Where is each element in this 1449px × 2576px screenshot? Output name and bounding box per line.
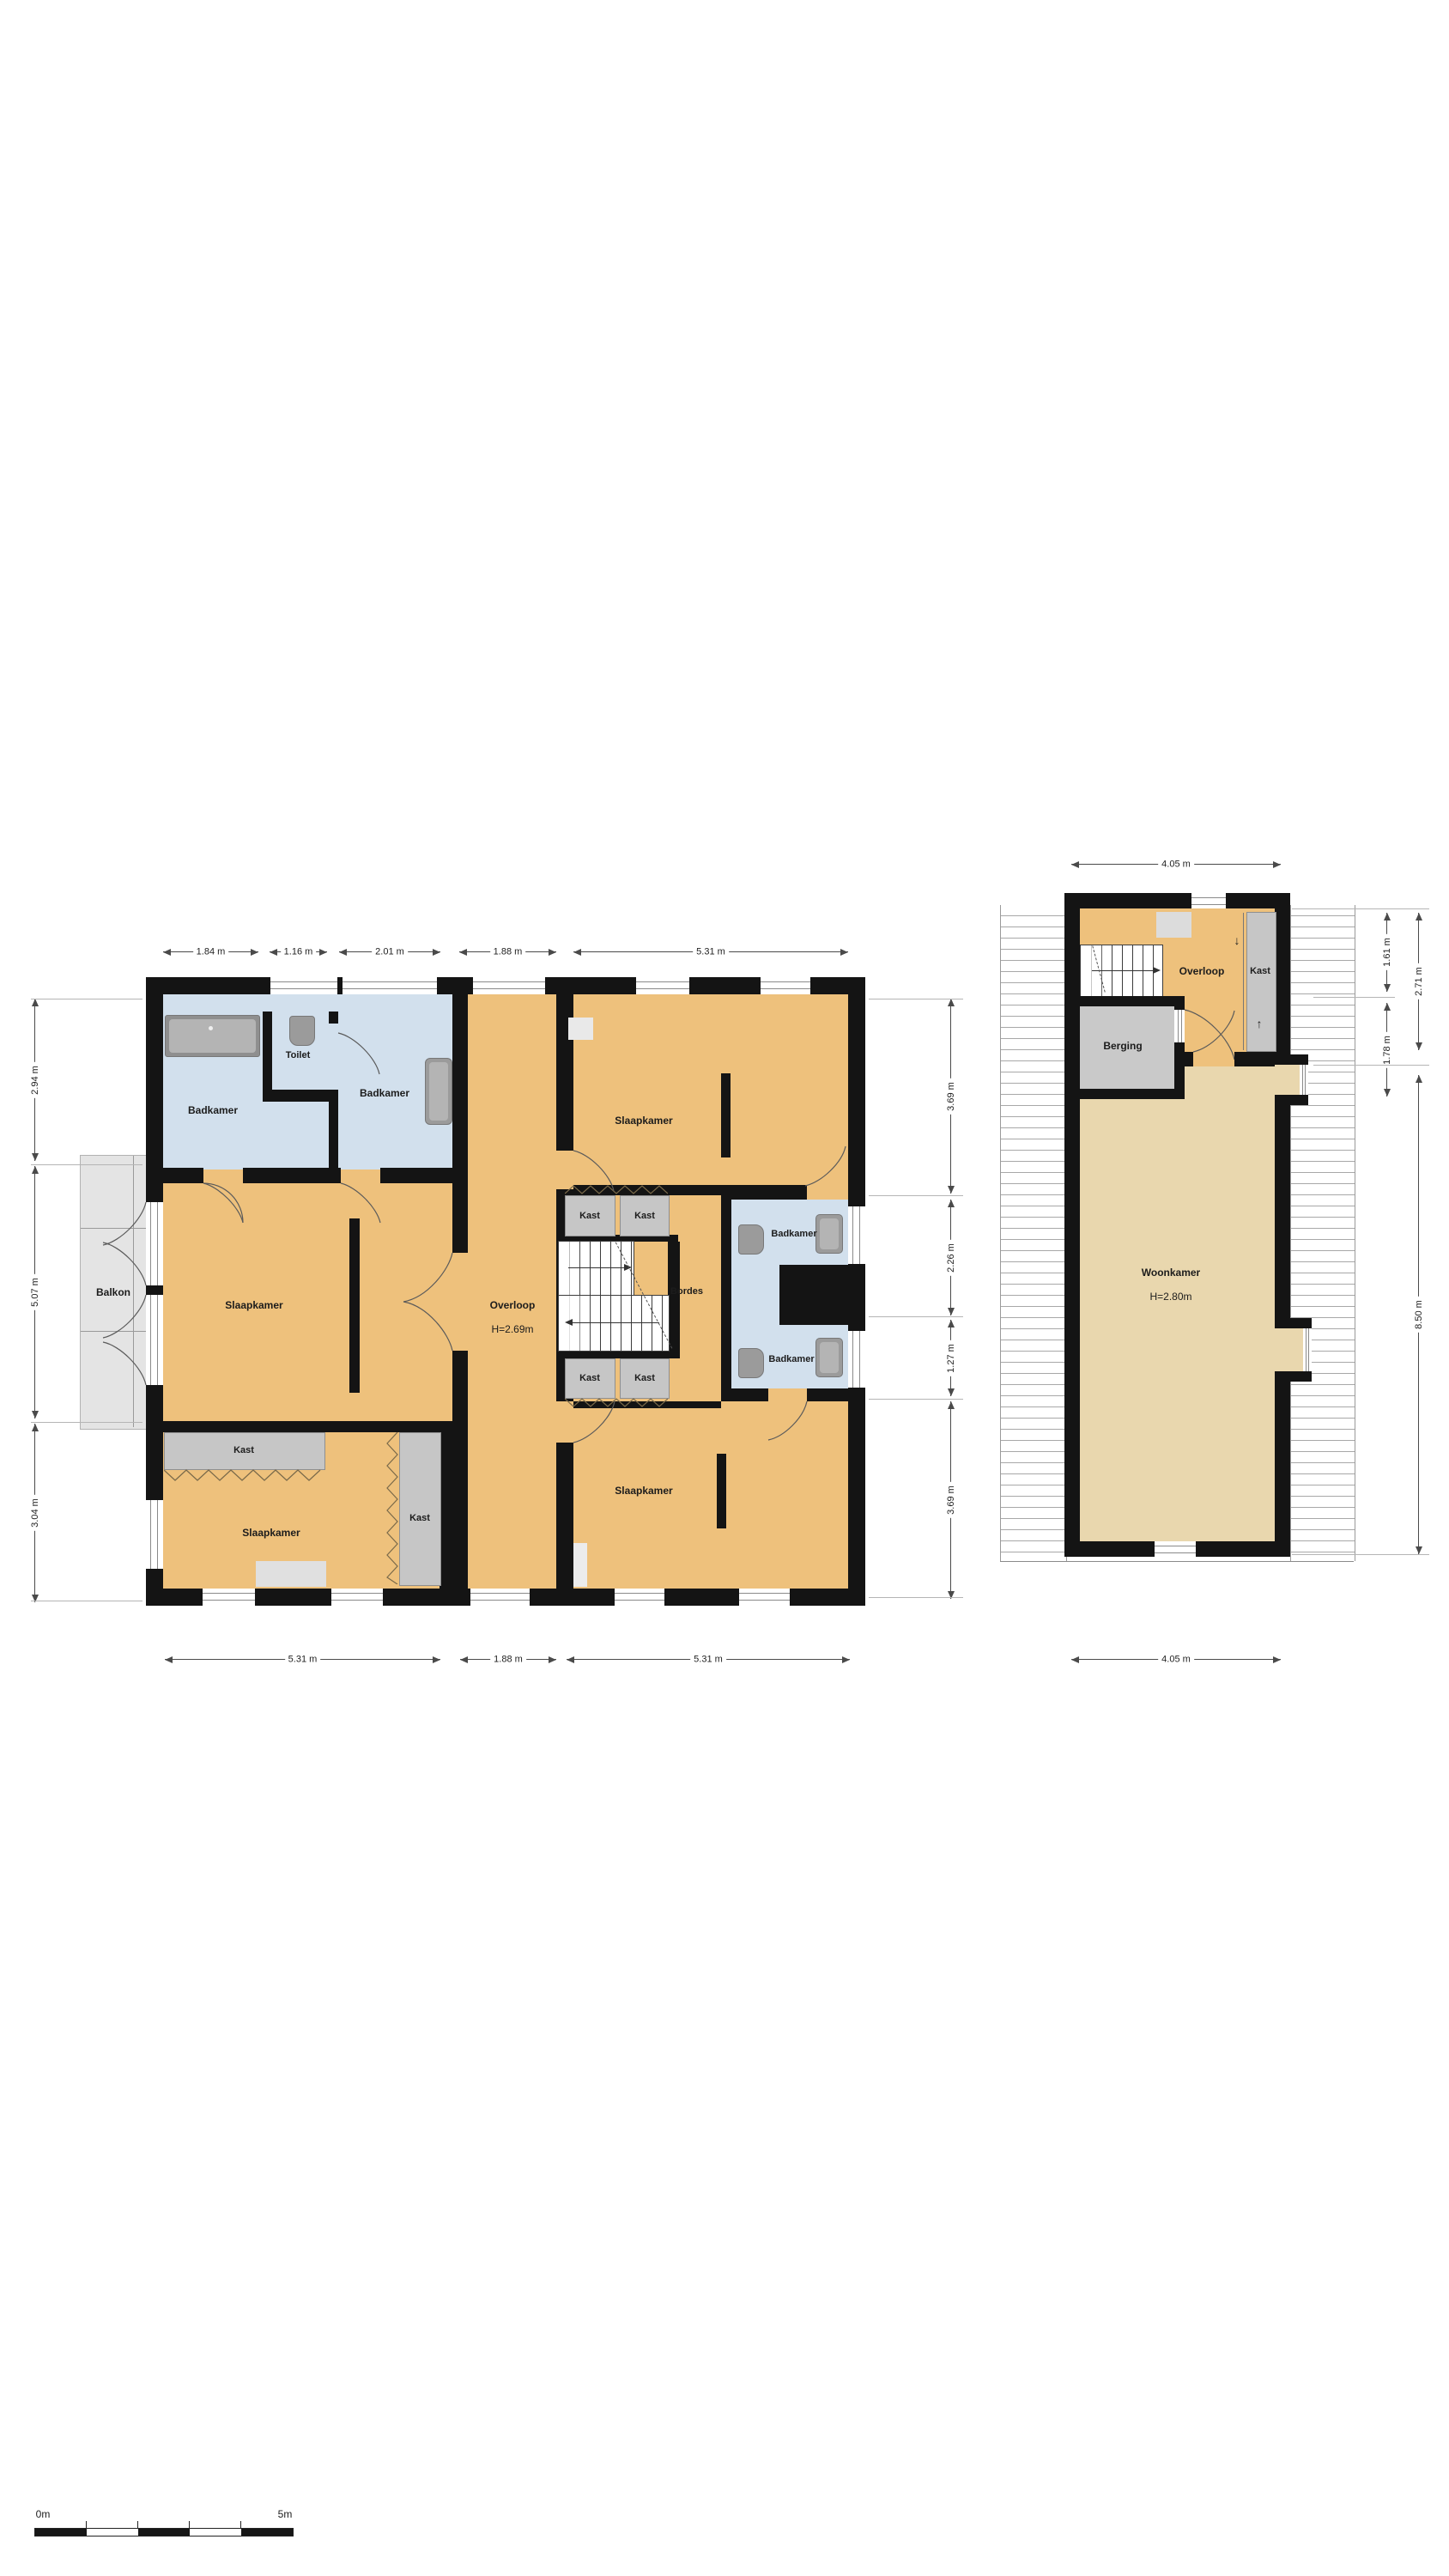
dim-right-1: 3.69 m — [950, 999, 951, 1194]
extension-line — [1292, 908, 1429, 909]
stair-arrowhead — [1153, 967, 1161, 974]
extension-line — [1292, 1554, 1429, 1555]
dim-left-1: 2.94 m — [34, 999, 35, 1161]
wall-stub — [349, 1218, 360, 1393]
dim-label: 1.88 m — [490, 1654, 526, 1664]
extension-line — [869, 1316, 963, 1317]
room-label-kast-right: Kast — [1250, 966, 1270, 976]
dim-label: 5.31 m — [693, 946, 729, 957]
dim-right-2: 2.26 m — [950, 1200, 951, 1315]
wall — [440, 1432, 452, 1589]
rug — [573, 1543, 587, 1587]
wall — [556, 1443, 573, 1589]
dim-bottom-1: 5.31 m — [165, 1659, 440, 1660]
dim-label: 1.27 m — [946, 1340, 956, 1376]
sink — [425, 1058, 452, 1125]
room-label-kast-tall: Kast — [409, 1513, 430, 1523]
door-arc — [103, 1342, 146, 1385]
stairs-lower-flight — [558, 1295, 670, 1352]
roof-hatch-left — [1000, 905, 1067, 1561]
sink — [815, 1338, 843, 1377]
door-arc — [203, 1183, 243, 1223]
extension-line — [1313, 997, 1395, 998]
dim-top-4: 1.88 m — [459, 951, 556, 952]
door-arc — [573, 1151, 614, 1191]
dim-top-3: 2.01 m — [339, 951, 440, 952]
extension-line — [31, 1164, 142, 1165]
wall — [1275, 1318, 1312, 1328]
extension-line — [31, 1601, 142, 1601]
window — [1155, 1541, 1196, 1557]
dim-label: 2.26 m — [946, 1240, 956, 1276]
wall — [1064, 1089, 1185, 1099]
wall — [848, 977, 865, 1606]
scale-label-end: 5m — [278, 2508, 293, 2520]
door-arc-double — [403, 1302, 452, 1351]
room-label-berging: Berging — [1103, 1040, 1142, 1052]
floorplan-canvas: Badkamer Toilet Badkamer Slaapkamer Balk… — [0, 0, 1449, 2576]
dim-label: 5.31 m — [690, 1654, 726, 1664]
extension-line — [31, 999, 142, 999]
wall — [452, 1351, 468, 1589]
wall — [1275, 1054, 1308, 1065]
room-label-badkamer-nw: Badkamer — [188, 1104, 238, 1116]
window — [739, 1589, 790, 1606]
stair-arrow — [570, 1322, 659, 1323]
room-label-badkamer-e2: Badkamer — [768, 1354, 814, 1364]
wall — [1275, 1095, 1308, 1105]
dim-rp-inner-1: 1.61 m — [1386, 913, 1387, 992]
scale-tick — [137, 2521, 138, 2528]
kast-tall-box — [399, 1432, 441, 1586]
wall — [1275, 893, 1290, 1065]
extension-line — [31, 1422, 142, 1423]
sink-inner — [429, 1062, 448, 1121]
wall — [452, 994, 468, 1253]
wall — [1064, 893, 1290, 908]
wall — [146, 1285, 163, 1295]
room-label-slaapkamer-w: Slaapkamer — [225, 1299, 282, 1311]
corner-panel — [568, 1018, 593, 1040]
dim-label: 8.50 m — [1414, 1297, 1424, 1333]
room-label-bordes: Bordes — [670, 1286, 703, 1297]
dim-right-4: 3.69 m — [950, 1401, 951, 1599]
room-label-overloop2: Overloop — [1179, 965, 1225, 977]
dim-label: 5.07 m — [30, 1274, 40, 1310]
wall — [243, 1168, 341, 1183]
folding-door-icon — [164, 1468, 324, 1484]
stairs-upper-flight — [558, 1241, 634, 1297]
dim-rp-inner-2: 1.78 m — [1386, 1003, 1387, 1097]
dim-label: 1.61 m — [1382, 934, 1392, 970]
dim-label: 1.88 m — [490, 946, 526, 957]
dim-right-3: 1.27 m — [950, 1320, 951, 1396]
room-label-woonkamer: Woonkamer — [1142, 1267, 1200, 1279]
window — [270, 977, 337, 994]
window — [146, 1500, 163, 1569]
berging-door-opening — [1174, 1010, 1185, 1042]
dim-label: 4.05 m — [1158, 1654, 1194, 1664]
door-arc — [338, 1033, 379, 1074]
sink-inner — [820, 1342, 839, 1373]
window — [331, 1589, 383, 1606]
room-label-kast-wide: Kast — [233, 1445, 254, 1455]
door-arc-double — [403, 1253, 452, 1302]
door-arc — [1193, 1011, 1234, 1052]
wall — [329, 1012, 338, 1024]
woonkamer-bump-lower — [1275, 1328, 1303, 1371]
door-arc — [103, 1242, 146, 1285]
scale-tick — [240, 2521, 241, 2528]
scale-label-start: 0m — [36, 2508, 51, 2520]
extension-line — [869, 999, 963, 999]
door-arc — [805, 1146, 846, 1186]
stair-up-arrow-icon: ↑ — [1257, 1017, 1263, 1030]
dim-label: 2.01 m — [372, 946, 408, 957]
kast-slide-line — [1243, 913, 1244, 1050]
ground-line — [1000, 1561, 1354, 1562]
dim-label: 3.04 m — [30, 1495, 40, 1531]
wall — [263, 1012, 272, 1092]
bathtub-drain — [209, 1026, 213, 1030]
wall — [1275, 1371, 1312, 1382]
sink-inner — [820, 1218, 839, 1249]
room-label-slaapkamer-ne: Slaapkamer — [615, 1115, 672, 1127]
dim-rp-top: 4.05 m — [1071, 864, 1281, 865]
stair-arrowhead — [565, 1319, 573, 1326]
stair-down-arrow-icon: ↓ — [1234, 933, 1240, 947]
dim-label: 3.69 m — [946, 1482, 956, 1518]
stairs-right-plan — [1080, 945, 1163, 998]
extension-line — [869, 1597, 963, 1598]
wall — [807, 1388, 848, 1401]
window — [848, 1331, 865, 1388]
wall — [163, 1421, 452, 1432]
bathtub-inner — [169, 1019, 256, 1053]
dim-label: 1.16 m — [281, 946, 317, 957]
dim-top-2: 1.16 m — [270, 951, 327, 952]
window — [1300, 1065, 1308, 1095]
wall — [721, 1185, 807, 1200]
wall — [1275, 1382, 1290, 1541]
wall — [263, 1090, 338, 1102]
scale-tick — [86, 2521, 87, 2528]
room-label-overloop: Overloop — [490, 1299, 536, 1311]
dim-left-2: 5.07 m — [34, 1166, 35, 1419]
door-arc — [103, 1295, 146, 1338]
wall — [380, 1168, 452, 1183]
wall — [721, 1200, 731, 1401]
scale-bar — [34, 2528, 294, 2537]
balkon-line-v — [133, 1156, 134, 1427]
dim-label: 2.94 m — [30, 1062, 40, 1098]
woonkamer-bump-upper — [1275, 1065, 1300, 1095]
sink — [815, 1214, 843, 1254]
dim-left-3: 3.04 m — [34, 1424, 35, 1602]
dim-rp-outer-1: 2.71 m — [1418, 913, 1419, 1050]
wall — [1185, 1052, 1193, 1066]
room-label-overloop-height: H=2.69m — [491, 1323, 533, 1335]
door-arc — [341, 1183, 380, 1223]
window — [1191, 893, 1226, 908]
dim-top-5: 5.31 m — [573, 951, 848, 952]
dim-label: 3.69 m — [946, 1078, 956, 1115]
extension-line — [869, 1399, 963, 1400]
dim-rp-outer-2: 8.50 m — [1418, 1075, 1419, 1554]
dim-label: 4.05 m — [1158, 859, 1194, 869]
folding-door-icon — [384, 1432, 399, 1584]
window — [343, 977, 437, 994]
dim-rp-bottom: 4.05 m — [1071, 1659, 1281, 1660]
window — [636, 977, 689, 994]
badkamer-corridor-floor — [731, 1265, 779, 1325]
dim-bottom-3: 5.31 m — [567, 1659, 850, 1660]
wall — [1275, 1095, 1290, 1318]
window — [848, 1206, 865, 1264]
dim-bottom-2: 1.88 m — [460, 1659, 556, 1660]
window — [761, 977, 810, 994]
wall — [668, 1242, 680, 1358]
rug — [256, 1561, 326, 1587]
stair-arrow — [568, 1267, 625, 1268]
wall — [1174, 996, 1185, 1010]
room-label-kast-s1: Kast — [579, 1373, 600, 1383]
window — [1303, 1328, 1312, 1371]
scale-tick — [189, 2521, 190, 2528]
room-label-toilet: Toilet — [286, 1050, 311, 1060]
wall-stub — [717, 1454, 726, 1528]
door-arc — [573, 1401, 615, 1443]
roof-hatch-right — [1290, 905, 1355, 1561]
toilet — [738, 1224, 764, 1255]
room-label-badkamer-e1: Badkamer — [771, 1229, 816, 1239]
wall — [1234, 1052, 1275, 1066]
kast-right-plan-box — [1246, 912, 1276, 1052]
door-arc — [103, 1202, 146, 1245]
extension-line — [869, 1195, 963, 1196]
room-label-badkamer-n: Badkamer — [360, 1087, 409, 1099]
bathtub — [165, 1015, 260, 1057]
extension-line — [1313, 1065, 1429, 1066]
room-label-kast-n2: Kast — [634, 1211, 655, 1221]
wall-stub — [721, 1073, 731, 1157]
dim-label: 1.84 m — [193, 946, 229, 957]
wall — [779, 1265, 848, 1325]
room-label-kast-s2: Kast — [634, 1373, 655, 1383]
window — [615, 1589, 664, 1606]
wall — [1064, 996, 1185, 1006]
dim-label: 2.71 m — [1414, 963, 1424, 999]
window — [473, 977, 545, 994]
stair-arrow — [1092, 970, 1154, 971]
door-arc — [768, 1401, 807, 1440]
room-label-balkon: Balkon — [96, 1286, 130, 1298]
wall — [721, 1388, 768, 1401]
room-label-woonkamer-height: H=2.80m — [1149, 1291, 1191, 1303]
window — [203, 1589, 255, 1606]
wall — [163, 1168, 203, 1183]
room-label-kast-n1: Kast — [579, 1211, 600, 1221]
room-label-slaapkamer-sw: Slaapkamer — [242, 1527, 300, 1539]
dim-label: 1.78 m — [1382, 1032, 1392, 1068]
dim-top-1: 1.84 m — [163, 951, 258, 952]
room-label-slaapkamer-se: Slaapkamer — [615, 1485, 672, 1497]
window — [470, 1589, 530, 1606]
dim-label: 5.31 m — [285, 1654, 321, 1664]
skylight-panel — [1156, 912, 1191, 938]
wall — [1064, 893, 1080, 1541]
toilet — [289, 1016, 315, 1046]
toilet — [738, 1348, 764, 1378]
